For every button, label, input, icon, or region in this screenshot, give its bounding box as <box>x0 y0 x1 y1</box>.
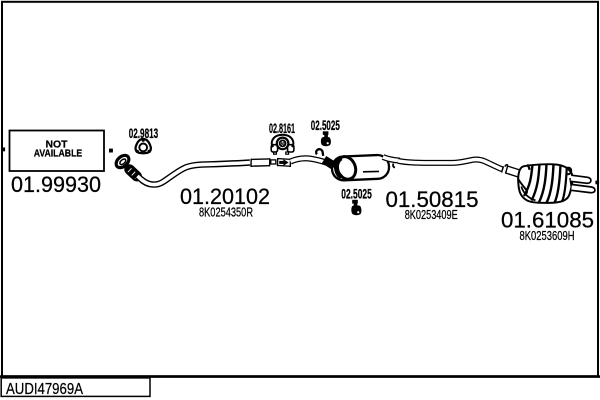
svg-text:8K0254350R: 8K0254350R <box>199 205 253 220</box>
svg-text:01.99930: 01.99930 <box>11 172 101 197</box>
svg-text:02.5025: 02.5025 <box>341 186 372 202</box>
svg-text:02.5025: 02.5025 <box>311 117 340 133</box>
svg-text:60: 60 <box>281 141 286 147</box>
svg-text:02.8161: 02.8161 <box>269 120 295 136</box>
svg-text:AUDI47969A: AUDI47969A <box>6 381 83 398</box>
svg-text:8K0253609H: 8K0253609H <box>520 228 575 243</box>
svg-text:AVAILABLE: AVAILABLE <box>34 147 82 159</box>
svg-text:8K0253409E: 8K0253409E <box>405 207 458 222</box>
